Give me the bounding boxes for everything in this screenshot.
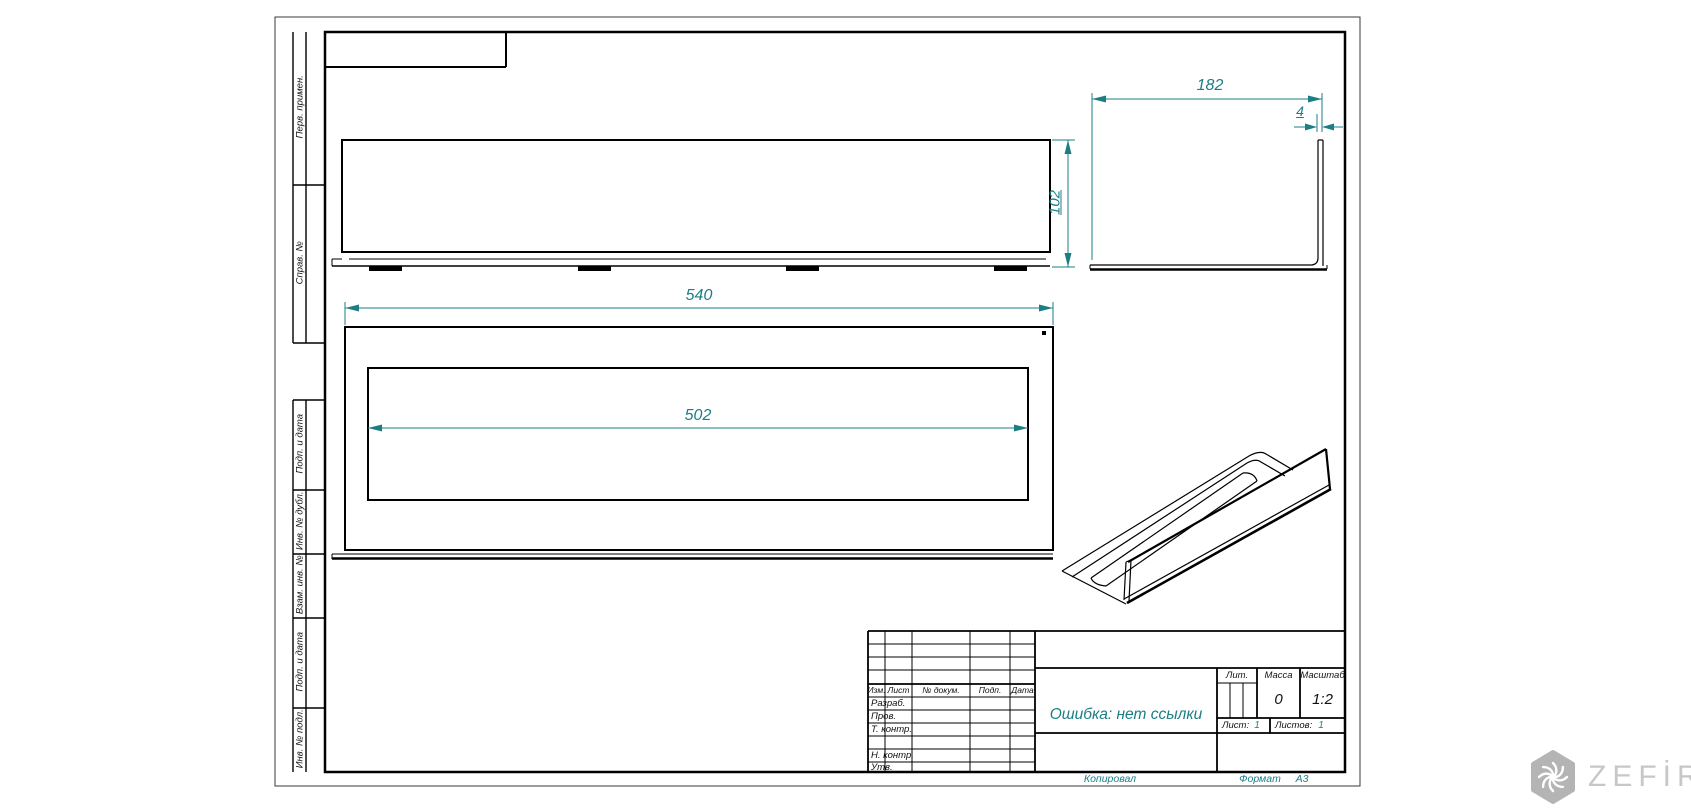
dimension-lines [345, 93, 1343, 432]
dim-side-depth: 182 [1185, 78, 1235, 94]
th-data: Дата [1010, 686, 1035, 695]
side-view [1090, 140, 1327, 270]
dim-top-view-height: 102 [1048, 173, 1063, 233]
sheet-value: 1 [1248, 721, 1266, 731]
zefire-logo-text: ZEFİRE [1588, 760, 1691, 794]
row-razrab: Разраб. [871, 699, 905, 709]
format-value: А3 [1287, 774, 1317, 785]
row-prov: Пров. [871, 712, 896, 722]
scale-label: Масштаб [1300, 671, 1345, 681]
row-t-kontr: Т. контр. [871, 725, 912, 735]
dim-flange-thickness: 4 [1290, 104, 1310, 118]
mass-label: Масса [1257, 671, 1300, 681]
margin-label-sprav-no: Справ. № [295, 187, 305, 337]
document-name: Ошибка: нет ссылки [1040, 707, 1212, 723]
th-podp: Подп. [970, 686, 1010, 695]
margin-label-perv-primen: Перв. примен. [295, 32, 305, 182]
drawing-canvas [0, 0, 1691, 810]
dim-front-opening-width: 502 [673, 408, 723, 424]
hole-marker [1042, 331, 1046, 335]
row-n-kontr: Н. контр. [871, 751, 914, 761]
mass-value: 0 [1257, 692, 1300, 707]
copied-label: Копировал [1070, 774, 1150, 785]
sheet-frame [325, 32, 1345, 772]
sheets-label: Листов: [1275, 721, 1312, 731]
isometric-view [1062, 449, 1331, 604]
top-stamp-box [325, 32, 506, 67]
margin-label-podp-data-2: Подп. и дата [295, 618, 305, 704]
zefire-logo: ZEFİRE [1528, 750, 1691, 804]
front-view [332, 327, 1053, 559]
lit-label: Лит. [1217, 671, 1257, 681]
top-view [332, 140, 1050, 271]
th-docum: № докум. [912, 686, 970, 695]
margin-label-inv-dubl: Инв. № дубл. [295, 489, 305, 551]
format-label: Формат [1230, 774, 1290, 785]
zefire-logo-icon [1528, 750, 1578, 804]
sheet-outer-border [275, 17, 1360, 786]
drawing-sheet-page: 540 502 182 102 4 Перв. примен. Справ. №… [0, 0, 1691, 810]
margin-label-vzam-inv: Взам. инв. № [295, 553, 305, 615]
th-izm: Изм. [867, 686, 886, 695]
sheets-value: 1 [1312, 721, 1330, 731]
th-list: Лист [885, 686, 912, 695]
row-utv: Утв. [871, 763, 893, 773]
sheet-label: Лист: [1222, 721, 1249, 731]
margin-label-podp-data-1: Подп. и дата [295, 400, 305, 486]
margin-label-inv-podl: Инв. № подл. [295, 707, 305, 769]
scale-value: 1:2 [1300, 692, 1345, 707]
dim-front-width: 540 [674, 288, 724, 304]
